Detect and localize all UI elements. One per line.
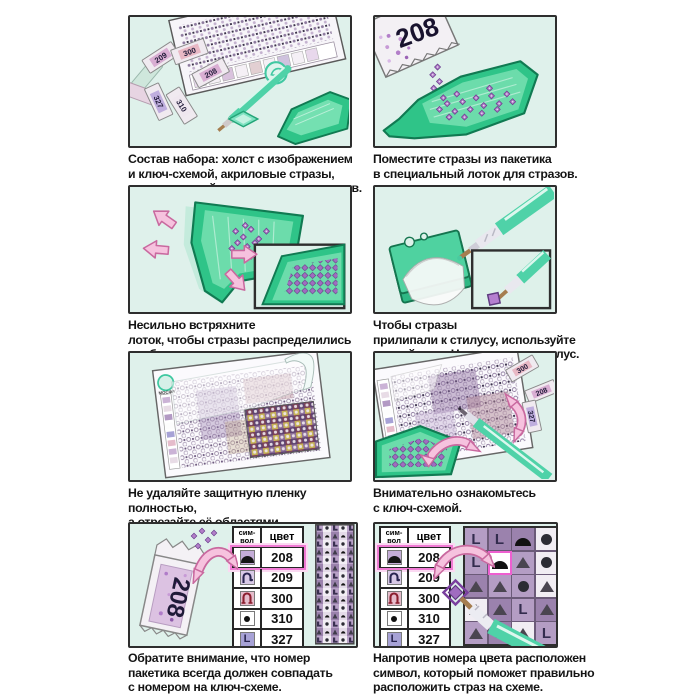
- schema-cell: [512, 528, 534, 550]
- dome-icon: [515, 538, 531, 546]
- key-row-209: 209: [381, 569, 449, 590]
- tri-icon: [516, 557, 530, 568]
- schema-cell: [536, 599, 558, 621]
- key-row-300: 300: [381, 589, 449, 610]
- tray: [278, 92, 349, 144]
- key-row-209: 209: [234, 569, 302, 590]
- inset-box: [255, 245, 344, 308]
- dome-icon: [388, 556, 401, 563]
- dot-icon: [541, 557, 552, 568]
- dot-icon: [391, 616, 397, 622]
- symbol-column-header: сим- вол: [381, 528, 409, 546]
- schema-cell: [489, 552, 511, 574]
- arch-icon: [240, 591, 255, 606]
- tri-icon: [540, 581, 554, 592]
- schema-cell: L: [536, 622, 558, 644]
- color-column-header: цвет: [262, 528, 302, 546]
- schema-cell: [536, 575, 558, 597]
- inset-box: [472, 250, 550, 308]
- dot-icon: [518, 581, 529, 592]
- hook-icon: [387, 570, 402, 585]
- schema-cell: L: [489, 528, 511, 550]
- canvas: МОСФА: [153, 353, 330, 478]
- key-row-327: L 327: [381, 630, 449, 648]
- kit-illustration: 209 300 208 327 310: [130, 17, 349, 145]
- step-7-panel: 208 сим- вол цвет 208 209: [128, 522, 358, 648]
- key-row-208: 208: [234, 548, 302, 569]
- step-2-panel: 208: [373, 15, 557, 148]
- step-8-panel: сим- вол цвет 208 209 300 310 L 327: [373, 522, 558, 648]
- tri-icon: [540, 604, 554, 615]
- gel-pad: [388, 225, 475, 311]
- film-illustration: МОСФА: [130, 353, 349, 479]
- step-6-panel: 300 208 327: [373, 351, 557, 482]
- schema-grid: LLLLLL: [463, 526, 558, 646]
- step-3-panel: [128, 185, 352, 314]
- tri-icon: [516, 628, 530, 639]
- shake-arrow-icon: [149, 204, 179, 233]
- packet: 208: [525, 379, 554, 403]
- shake-illustration: [130, 187, 349, 311]
- shake-arrow-icon: [143, 240, 169, 259]
- double-arrow-icon: [190, 538, 238, 584]
- schema-cell: [512, 575, 534, 597]
- schema-cell: [536, 528, 558, 550]
- step-5-panel: МОСФА: [128, 351, 352, 482]
- key-table: сим- вол цвет 208 209 300 310 L 327: [232, 526, 304, 648]
- tri-icon: [469, 604, 483, 615]
- schema-cell: [465, 622, 487, 644]
- instruction-sheet: 209 300 208 327 310: [0, 0, 700, 700]
- tri-icon: [493, 604, 507, 615]
- key-row-208: 208: [381, 548, 449, 569]
- svg-text:208: 208: [161, 575, 196, 620]
- schema-cell: [536, 552, 558, 574]
- schema-cell: [489, 575, 511, 597]
- key-row-310: 310: [381, 610, 449, 631]
- pour-illustration: 208: [375, 17, 554, 145]
- schema-cell: L: [512, 599, 534, 621]
- step-1-panel: 209 300 208 327 310: [128, 15, 352, 148]
- key-row-327: L 327: [234, 630, 302, 648]
- packet-208: 208: [375, 17, 460, 77]
- schema-strip: [315, 524, 355, 645]
- dome-icon: [241, 556, 254, 563]
- step-4-panel: [373, 185, 557, 314]
- symbol-column-header: сим- вол: [234, 528, 262, 546]
- key-table: сим- вол цвет 208 209 300 310 L 327: [379, 526, 451, 648]
- schema-cell: L: [489, 622, 511, 644]
- gel-on-tip: [488, 293, 501, 306]
- step-7-caption: Обратите внимание, что номер пакетика вс…: [128, 651, 364, 695]
- schema-cell: [489, 599, 511, 621]
- step-8-caption: Напротив номера цвета расположен символ,…: [373, 651, 605, 695]
- schema-cell: [465, 575, 487, 597]
- dot-icon: [541, 534, 552, 545]
- letter-L-icon: L: [244, 634, 251, 645]
- step-2-caption: Поместите стразы из пакетика в специальн…: [373, 152, 605, 181]
- tri-icon: [493, 581, 507, 592]
- schema-cell: [512, 622, 534, 644]
- letter-L-icon: L: [391, 634, 398, 645]
- hook-icon: [240, 570, 255, 585]
- schema-cell: L: [465, 528, 487, 550]
- gel-illustration: [375, 187, 554, 311]
- tri-icon: [469, 628, 483, 639]
- key-row-300: 300: [234, 589, 302, 610]
- tray: [384, 61, 538, 138]
- tri-icon: [469, 581, 483, 592]
- color-column-header: цвет: [409, 528, 449, 546]
- schema-cell: L: [465, 552, 487, 574]
- packet-208: 208: [130, 524, 230, 645]
- study-illustration: 300 208 327: [375, 353, 554, 479]
- step-6-caption: Внимательно ознакомьтесь с ключ-схемой.: [373, 486, 605, 515]
- dome-icon: [492, 561, 508, 569]
- arch-icon: [387, 591, 402, 606]
- key-row-310: 310: [234, 610, 302, 631]
- schema-cell: [512, 552, 534, 574]
- dot-icon: [244, 616, 250, 622]
- schema-cell: [465, 599, 487, 621]
